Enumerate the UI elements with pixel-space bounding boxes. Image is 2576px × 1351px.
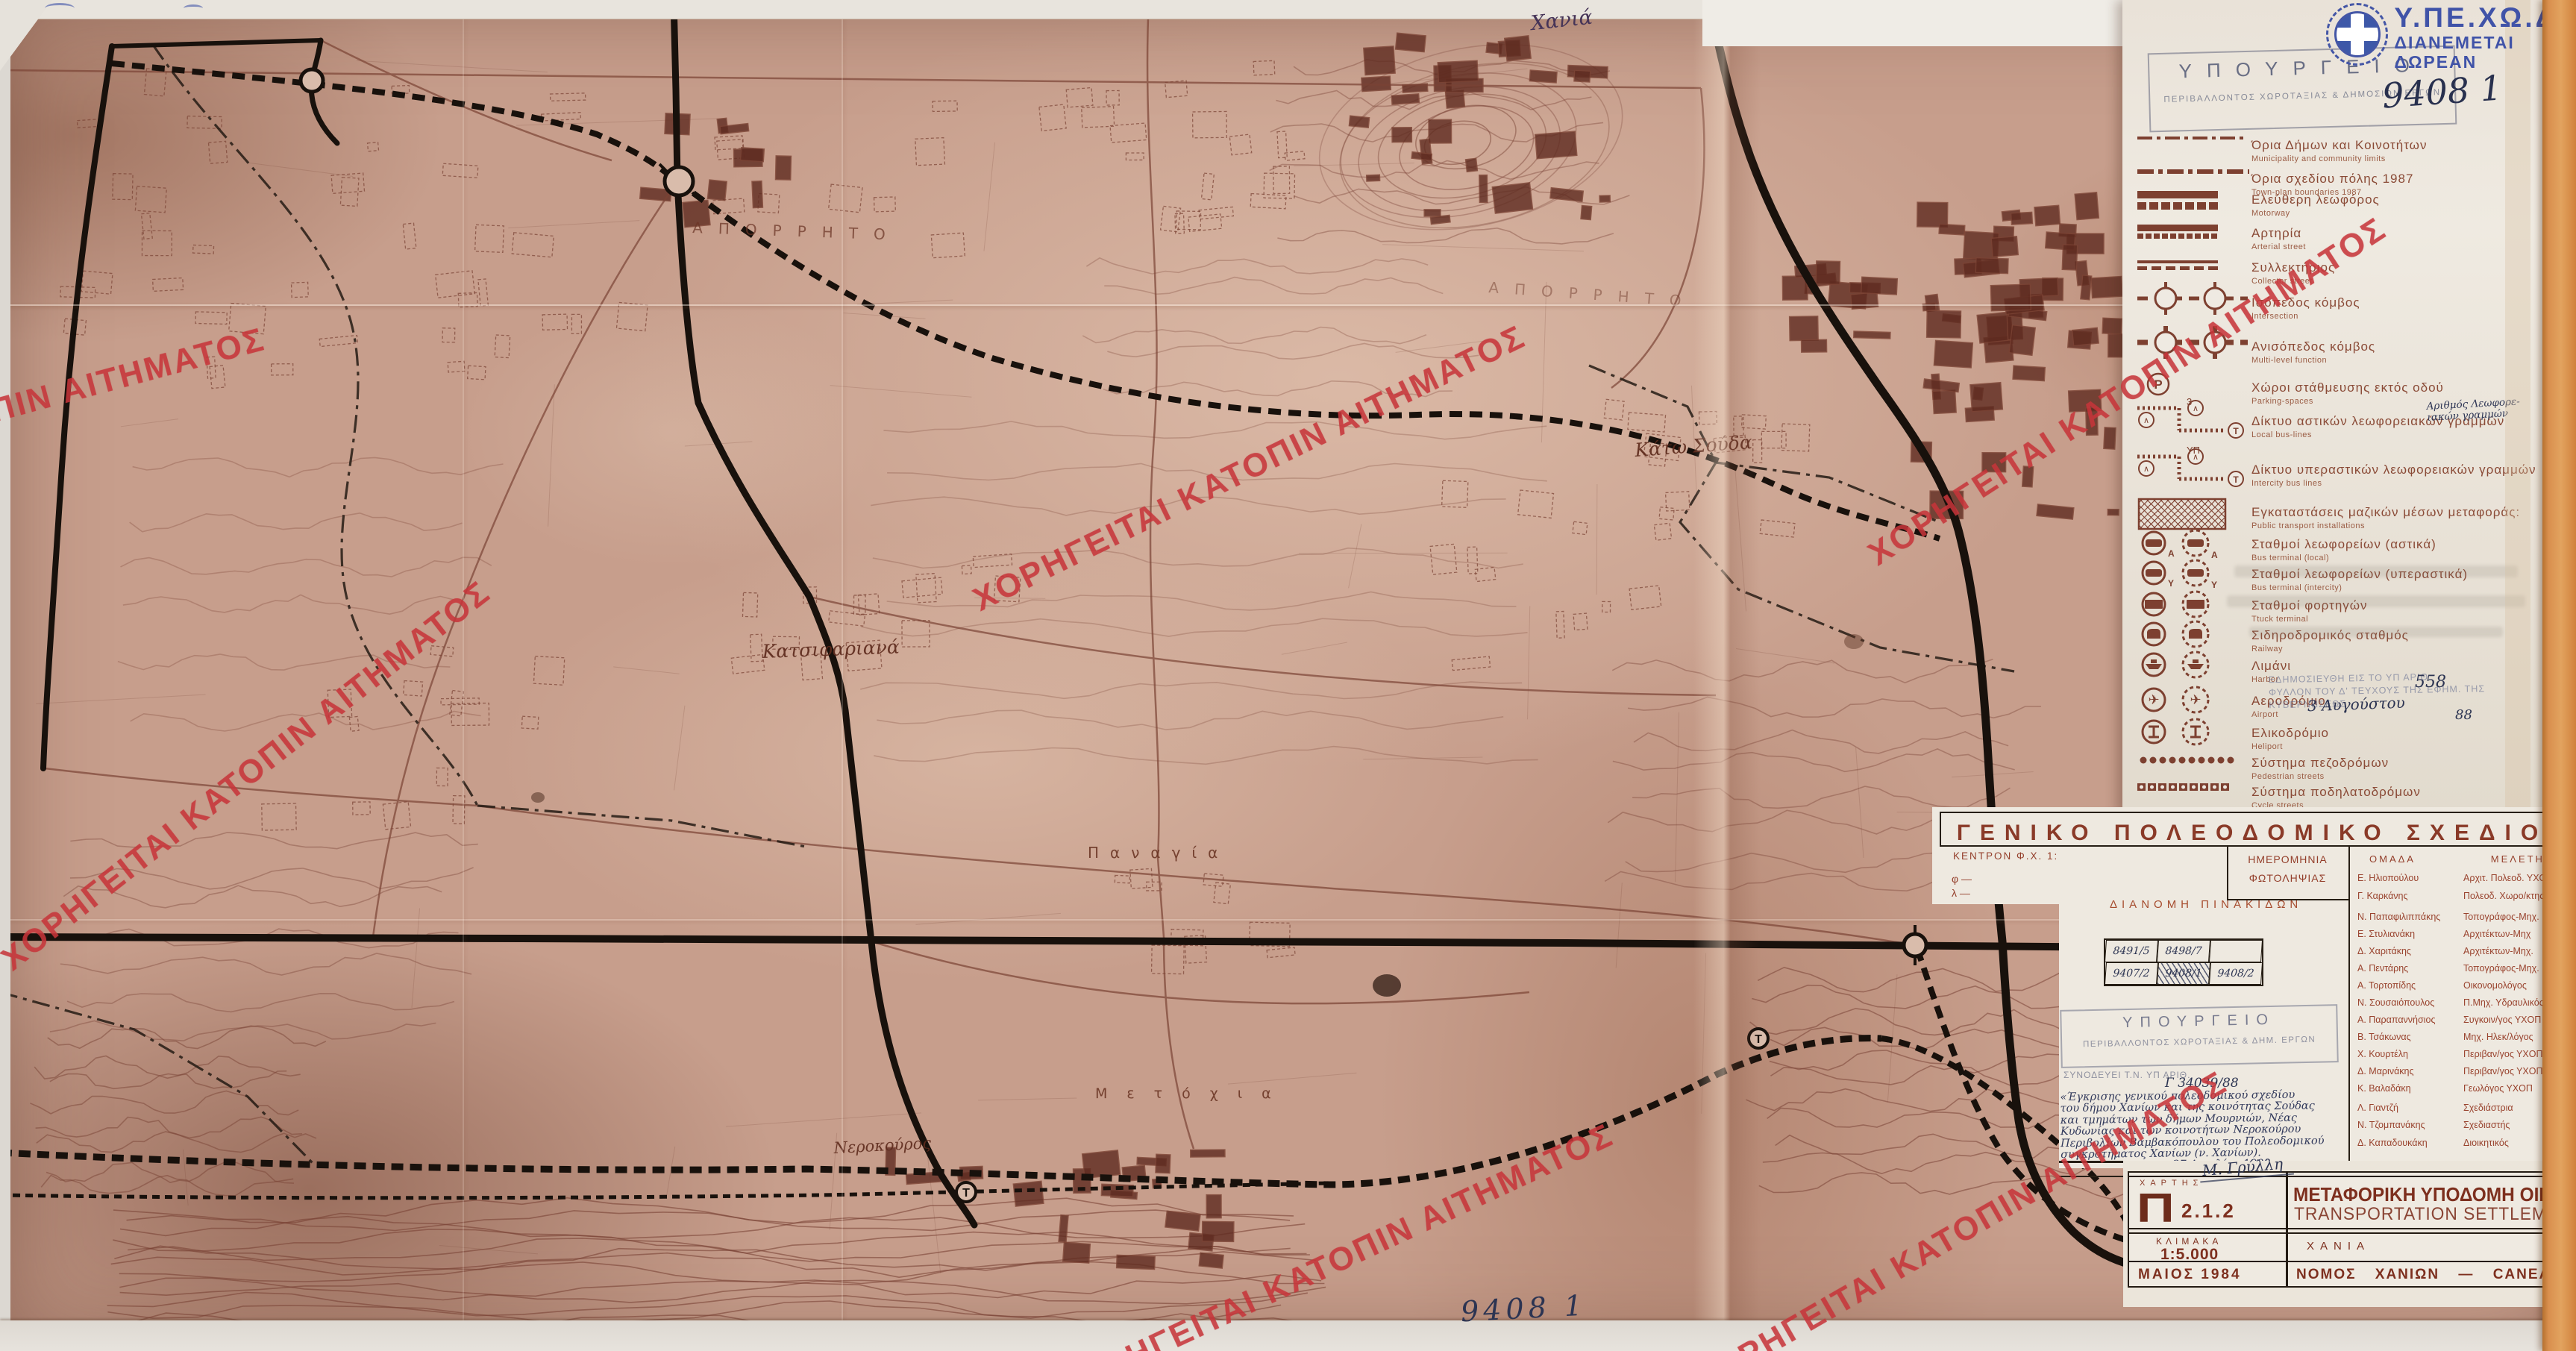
sheet-distribution-grid: 8491/58498/79407/29408/19408/2 [2104, 938, 2263, 986]
team-member-role: Σχεδιάστρια [2463, 1103, 2513, 1113]
legend-label-english: Municipality and community limits [2251, 154, 2528, 163]
pen-mark [45, 3, 75, 13]
team-member-name: Ν. Σουσαιόπουλος [2357, 997, 2434, 1008]
team-row: Δ. Μαρινάκης Περιβαν/γος ΥΧΟΠ [2357, 1066, 2571, 1076]
map-title-greek: ΜΕΤΑΦΟΡΙΚΗ ΥΠΟΔΟΜΗ ΟΙΚΙΣΜΟΣ [2293, 1183, 2576, 1206]
handwritten-bottom-sheet-number: 9408 1 [1460, 1289, 1588, 1329]
fold-crease [463, 0, 464, 1351]
city-label: ΧΑΝΙΑ [2307, 1240, 2370, 1253]
map-toponyms: Κατσιφαριανά Παναγία Μετόχια Νεροκούρος … [692, 219, 1753, 1157]
handwritten-bus-note: Αριθμός Λεωφορε-ιακών γραμμών [2426, 395, 2539, 424]
label-aporrito-1: ΑΠΟΡΡΗΤΟ [692, 219, 901, 244]
sheet-grid-cell: 9407/2 [2105, 962, 2158, 985]
team-row: Ν. Σουσαιόπουλος Π.Μηχ. Υδραυλικός [2357, 997, 2571, 1008]
fold-crease [0, 304, 2149, 306]
photo-date-label: ΗΜΕΡΟΜΗΝΙΑΦΩΤΟΛΗΨΙΑΣ [2229, 850, 2346, 888]
svg-text:3: 3 [2187, 398, 2192, 407]
team-member-name: Α. Τορτοπίδης [2357, 980, 2416, 991]
svg-text:Y: Y [2168, 578, 2174, 589]
greek-flag-emblem-icon [2326, 3, 2388, 66]
team-member-name: Ε. Ηλιοπούλου [2357, 873, 2419, 883]
title-box: ΓΕΝΙΚΟ ΠΟΛΕΟΔΟΜΙΚΟ ΣΧΕΔΙΟ [1940, 812, 2565, 847]
svg-text:∧: ∧ [2193, 404, 2199, 413]
map-date: ΜΑΙΟΣ 1984 [2138, 1267, 2242, 1283]
prefecture-label: ΝΟΜΟΣ ΧΑΝΙΩΝ — CANEA [2296, 1267, 2562, 1283]
sheet-grid-cell: 9408/2 [2209, 962, 2263, 985]
legend-label-greek: Όρια Δήμων και Κοινοτήτων [2251, 138, 2528, 153]
folder-edge [2542, 0, 2576, 1351]
legend-label-greek: Σύστημα πεζοδρόμων [2251, 756, 2528, 771]
approval-stamp: ΥΠΟΥΡΓΕΙΟ ΠΕΡΙΒΑΛΛΟΝΤΟΣ ΧΩΡΟΤΑΞΙΑΣ & ΔΗΜ… [2060, 1004, 2339, 1068]
map-code-number: 2.1.2 [2181, 1200, 2236, 1223]
team-member-role: Περιβαν/γος ΥΧΟΠ [2463, 1066, 2543, 1076]
legend-label-greek: Σταθμοί λεωφορείων (αστικά) [2251, 537, 2528, 552]
map-code-letter: Π [2137, 1185, 2175, 1232]
legend-symbol-pedestrian-streets-icon [2137, 753, 2249, 771]
legend-symbol-boundary-townplan-icon [2137, 164, 2249, 183]
team-member-role: Αρχιτέκτων-Μηχ. [2463, 946, 2533, 956]
svg-text:T: T [2233, 426, 2239, 436]
team-member-role: Σχεδιαστής [2463, 1120, 2510, 1130]
bleed-through [2249, 627, 2503, 637]
team-member-role: Αρχιτ. Πολεοδ. ΥΧΟΠ [2463, 873, 2553, 883]
scan-margin-top [0, 0, 1716, 19]
sheet-grid-cell: 8498/7 [2157, 940, 2210, 962]
legend-label-english: Pedestrian streets [2251, 772, 2528, 781]
team-row: Ε. Ηλιοπούλου Αρχιτ. Πολεοδ. ΥΧΟΠ [2357, 873, 2571, 883]
team-member-role: Πολεοδ. Χωρο/κτης [2463, 891, 2544, 901]
title-block: ΓΕΝΙΚΟ ΠΟΛΕΟΔΟΜΙΚΟ ΣΧΕΔΙΟ ΚΕΝΤΡΟΝ Φ.Χ. 1… [1932, 807, 2572, 1179]
legend-label-english: Railway [2251, 645, 2528, 653]
team-member-name: Α. Παραπαννήσιος [2357, 1015, 2435, 1025]
team-row: Α. Τορτοπίδης Οικονομολόγος [2357, 980, 2571, 991]
scan-margin-bottom [0, 1320, 2576, 1351]
team-member-name: Γ. Καρκάνης [2357, 891, 2408, 901]
team-member-role: Γεωλόγος ΥΧΟΠ [2463, 1083, 2533, 1094]
team-member-name: Δ. Μαρινάκης [2357, 1066, 2414, 1076]
fold-crease [0, 919, 2149, 921]
legend-symbol-arterial-icon [2137, 225, 2249, 245]
scale-label: ΚΛΙΜΑΚΑ [2156, 1236, 2222, 1247]
team-row: Γ. Καρκάνης Πολεοδ. Χωρο/κτης [2357, 891, 2571, 901]
svg-text:T: T [2233, 474, 2239, 485]
bleed-through [2234, 565, 2518, 577]
team-header: ΟΜΑΔΑΜΕΛΕΤΗΣ [2363, 853, 2559, 865]
map-title-english: TRANSPORTATION SETTLEMENT [2294, 1204, 2576, 1225]
team-row: Ν. Τζομπανάκης Σχεδιαστής [2357, 1120, 2571, 1130]
legend-panel: ΥΠΟΥΡΓΕΙΟ ΠΕΡΙΒΑΛΛΟΝΤΟΣ ΧΩΡΟΤΑΞΙΑΣ & ΔΗΜ… [2122, 0, 2544, 813]
legend-label-greek: Ανισόπεδος κόμβος [2251, 339, 2528, 354]
svg-text:✈: ✈ [2148, 692, 2159, 707]
team-row: Δ. Χαριτάκης Αρχιτέκτων-Μηχ. [2357, 946, 2571, 956]
team-row: Λ. Γιαντζή Σχεδιάστρια [2357, 1103, 2571, 1113]
legend-label-english: Ttuck terminal [2251, 615, 2528, 624]
team-member-role: Τοπογράφος-Μηχ. [2463, 963, 2539, 974]
junction-nodes [301, 69, 1926, 1202]
team-member-name: Β. Τσάκωνας [2357, 1032, 2411, 1042]
phi-field: φ — [1952, 873, 1972, 885]
team-member-name: Ν. Τζομπανάκης [2357, 1120, 2425, 1130]
legend-symbol-heliport-icon [2137, 715, 2249, 755]
scale-value: 1:5.000 [2160, 1246, 2219, 1264]
label-metochia: Μετόχια [1095, 1085, 1291, 1102]
legend-label-greek: Σύστημα ποδηλατοδρόμων [2251, 785, 2528, 800]
kentron-label: ΚΕΝΤΡΟΝ Φ.Χ. 1: [1953, 850, 2058, 862]
legend-label-greek: Χώροι στάθμευσης εκτός οδού [2251, 380, 2528, 395]
fold-crease [842, 0, 843, 1351]
legend-label-greek: Ελεύθερη λεωφόρος [2251, 192, 2528, 207]
team-member-name: Α. Πεντάρης [2357, 963, 2408, 974]
legend-label-english: Local bus-lines [2251, 430, 2528, 439]
team-member-role: Τοπογράφος-Μηχ. [2463, 912, 2539, 922]
team-row: Χ. Κουρτέλη Περιβαν/γος ΥΧΟΠ [2357, 1049, 2571, 1059]
parcel-blocks [60, 33, 2125, 1269]
team-member-role: Περιβαν/γος ΥΧΟΠ [2463, 1049, 2543, 1059]
bleed-through [2227, 595, 2525, 607]
team-member-name: Δ. Καπαδουκάκη [2357, 1138, 2428, 1148]
scan-margin-left [0, 0, 10, 1351]
sheet-grid-cell: 8491/5 [2105, 940, 2158, 962]
legend-symbol-motorway-icon [2137, 191, 2249, 216]
scanned-map-page: T T Κατσιφαριανά Παναγία Μετόχια Νεροκού… [0, 0, 2576, 1351]
team-row: Κ. Βαλαδάκη Γεωλόγος ΥΧΟΠ [2357, 1083, 2571, 1094]
legend-symbol-cycle-streets-icon [2137, 780, 2249, 799]
plan-title: ΓΕΝΙΚΟ ΠΟΛΕΟΔΟΜΙΚΟ ΣΧΕΔΙΟ [1941, 821, 2563, 846]
team-row: Δ. Καπαδουκάκη Διοικητικός [2357, 1138, 2571, 1148]
team-member-name: Ν. Παπαφιλιππάκης [2357, 912, 2440, 922]
label-nerokouros: Νεροκούρος [833, 1134, 932, 1157]
main-roads [0, 0, 2141, 1266]
team-row: Ε. Στυλιανάκη Αρχιτέκτων-Μηχ [2357, 929, 2571, 939]
legend-label-english: Motorway [2251, 209, 2528, 218]
team-member-name: Χ. Κουρτέλη [2357, 1049, 2408, 1059]
legend-label-greek: Δίκτυο υπεραστικών λεωφορειακών γραμμών [2251, 463, 2528, 477]
team-member-role: Μηχ. Ηλεκ/λόγος [2463, 1032, 2533, 1042]
legend-symbol-bus-network-intercity-icon: ∧∧TΥΠ [2137, 446, 2249, 493]
legend-label-english: Public transport installations [2251, 521, 2528, 530]
gazette-date: 3 Αυγούστου [2307, 694, 2406, 715]
team-member-name: Ε. Στυλιανάκη [2357, 929, 2415, 939]
ink-blot [1373, 974, 1401, 997]
legend-label-english: Intercity bus lines [2251, 479, 2528, 488]
legend-symbol-collector-icon [2137, 259, 2249, 276]
ink-blot [1844, 634, 1864, 649]
svg-text:ΥΠ: ΥΠ [2187, 446, 2200, 456]
legend-label-english: Bus terminal (local) [2251, 554, 2528, 562]
legend-label-greek: Ελικοδρόμιο [2251, 726, 2528, 741]
fold-band [1693, 0, 1761, 1351]
svg-text:∧: ∧ [2143, 465, 2149, 474]
legend-label-greek: Εγκαταστάσεις μαζικών μέσων μεταφοράς: [2251, 505, 2528, 520]
handwritten-sheet-number: 9408 1 [2381, 67, 2503, 116]
legend-label-english: Bus terminal (intercity) [2251, 583, 2528, 592]
team-row: Α. Παραπαννήσιος Συγκοιν/γος ΥΧΟΠ [2357, 1015, 2571, 1025]
team-row: Ν. Παπαφιλιππάκης Τοπογράφος-Μηχ. [2357, 912, 2571, 922]
legend-label-english: Multi-level function [2251, 356, 2528, 365]
team-row: Α. Πεντάρης Τοπογράφος-Μηχ. [2357, 963, 2571, 974]
team-member-name: Δ. Χαριτάκης [2357, 946, 2411, 956]
gazette-year: 88 [2455, 707, 2472, 723]
team-member-role: Αρχιτέκτων-Μηχ [2463, 929, 2530, 939]
legend-label-greek: Όρια σχεδίου πόλης 1987 [2251, 172, 2528, 186]
map-card: ΧΑΡΤΗΣ Π 2.1.2 ΜΕΤΑΦΟΡΙΚΗ ΥΠΟΔΟΜΗ ΟΙΚΙΣΜ… [2128, 1171, 2572, 1288]
legend-label-english: Heliport [2251, 742, 2528, 751]
gazette-number: 558 [2415, 673, 2446, 692]
label-katsifariana: Κατσιφαριανά [761, 636, 900, 662]
pen-mark [184, 4, 203, 12]
svg-text:∧: ∧ [2143, 416, 2149, 425]
svg-text:T: T [962, 1187, 970, 1200]
sheet-distribution-label: ΔΙΑΝΟΜΗ ΠΙΝΑΚΙΔΩΝ [2110, 898, 2302, 911]
legend-symbol-bus-network-local-icon: ∧∧T3 [2137, 398, 2249, 445]
lambda-field: λ — [1952, 887, 1970, 899]
label-panagia: Παναγία [1088, 844, 1229, 862]
svg-text:✈: ✈ [2190, 692, 2201, 707]
railway-lines [0, 63, 2135, 1243]
sheet-grid-cell: 9408/1 [2157, 962, 2210, 985]
minor-roads [0, 0, 1910, 1149]
sheet-grid-cell [2209, 940, 2263, 962]
team-member-name: Κ. Βαλαδάκη [2357, 1083, 2411, 1094]
team-member-role: Οικονομολόγος [2463, 980, 2527, 991]
team-member-role: Διοικητικός [2463, 1138, 2509, 1148]
team-member-name: Λ. Γιαντζή [2357, 1103, 2398, 1113]
ink-blot [531, 792, 545, 803]
team-member-role: Π.Μηχ. Υδραυλικός [2463, 997, 2544, 1008]
agency-logo: Υ.ΠΕ.ΧΩ.Δ.Ε. ΔΙΑΝΕΜΕΤΑΙ ΔΩΡΕΑΝ [2326, 3, 2576, 72]
legend-label-english: Intersection [2251, 312, 2528, 321]
legend-symbol-harbor-icon [2137, 648, 2249, 688]
team-member-role: Συγκοιν/γος ΥΧΟΠ [2463, 1015, 2541, 1025]
legend-symbol-boundary-municipal-icon [2137, 131, 2249, 149]
team-row: Β. Τσάκωνας Μηχ. Ηλεκ/λόγος [2357, 1032, 2571, 1042]
field-texture [36, 60, 2084, 1273]
